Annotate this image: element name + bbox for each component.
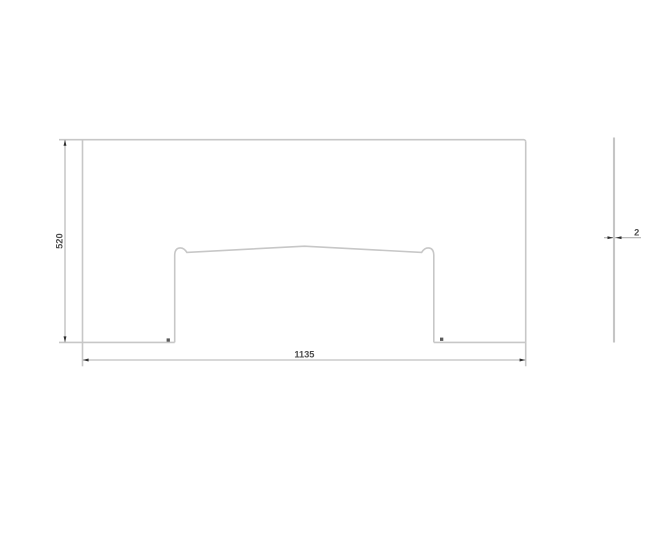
svg-text:1135: 1135: [294, 349, 314, 359]
svg-text:2: 2: [634, 227, 639, 237]
svg-text:520: 520: [54, 233, 64, 249]
